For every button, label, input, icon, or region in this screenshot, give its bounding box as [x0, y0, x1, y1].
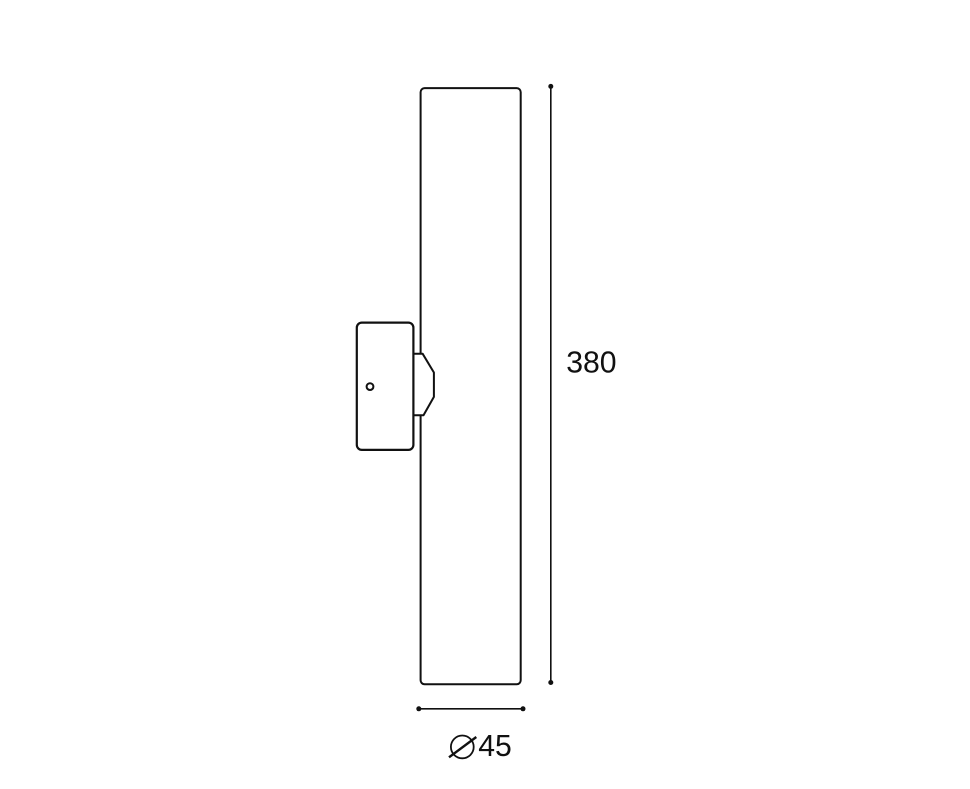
svg-text:380: 380: [566, 347, 616, 380]
svg-text:45: 45: [478, 730, 512, 763]
